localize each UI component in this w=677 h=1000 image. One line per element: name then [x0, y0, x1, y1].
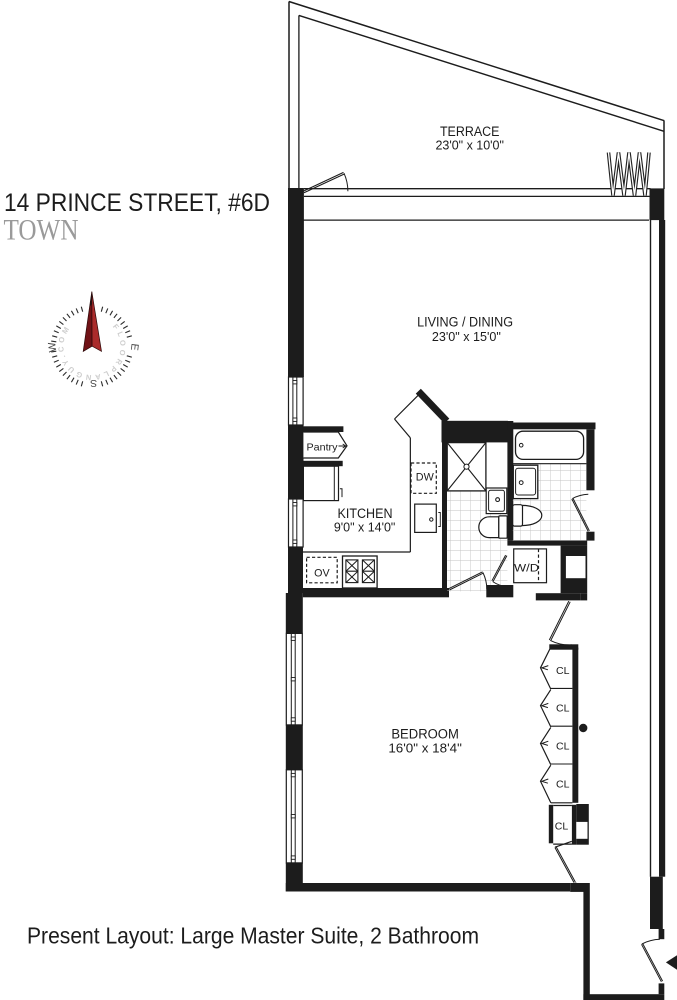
svg-text:LIVING / DINING: LIVING / DINING	[417, 314, 513, 329]
svg-text:23'0" x 15'0": 23'0" x 15'0"	[432, 329, 501, 344]
svg-text:9'0" x 14'0": 9'0" x 14'0"	[334, 520, 396, 535]
svg-text:DW: DW	[416, 472, 435, 484]
svg-text:W/D: W/D	[514, 562, 539, 574]
svg-text:CL: CL	[556, 665, 570, 677]
svg-text:Pantry: Pantry	[307, 442, 339, 454]
svg-text:S: S	[90, 377, 97, 389]
svg-text:CL: CL	[556, 703, 570, 715]
svg-text:W: W	[46, 342, 59, 353]
svg-text:16'0" x 18'4": 16'0" x 18'4"	[388, 740, 462, 755]
svg-text:OV: OV	[314, 568, 330, 580]
svg-text:CL: CL	[556, 778, 570, 790]
svg-text:TOWN: TOWN	[4, 214, 79, 247]
svg-text:CL: CL	[555, 820, 569, 832]
svg-text:E: E	[128, 343, 141, 351]
svg-text:CL: CL	[556, 741, 570, 753]
svg-text:Present Layout: Large Master: Present Layout: Large Master Suite, 2 Ba…	[27, 923, 479, 949]
svg-text:23'0" x 10'0": 23'0" x 10'0"	[435, 138, 504, 153]
